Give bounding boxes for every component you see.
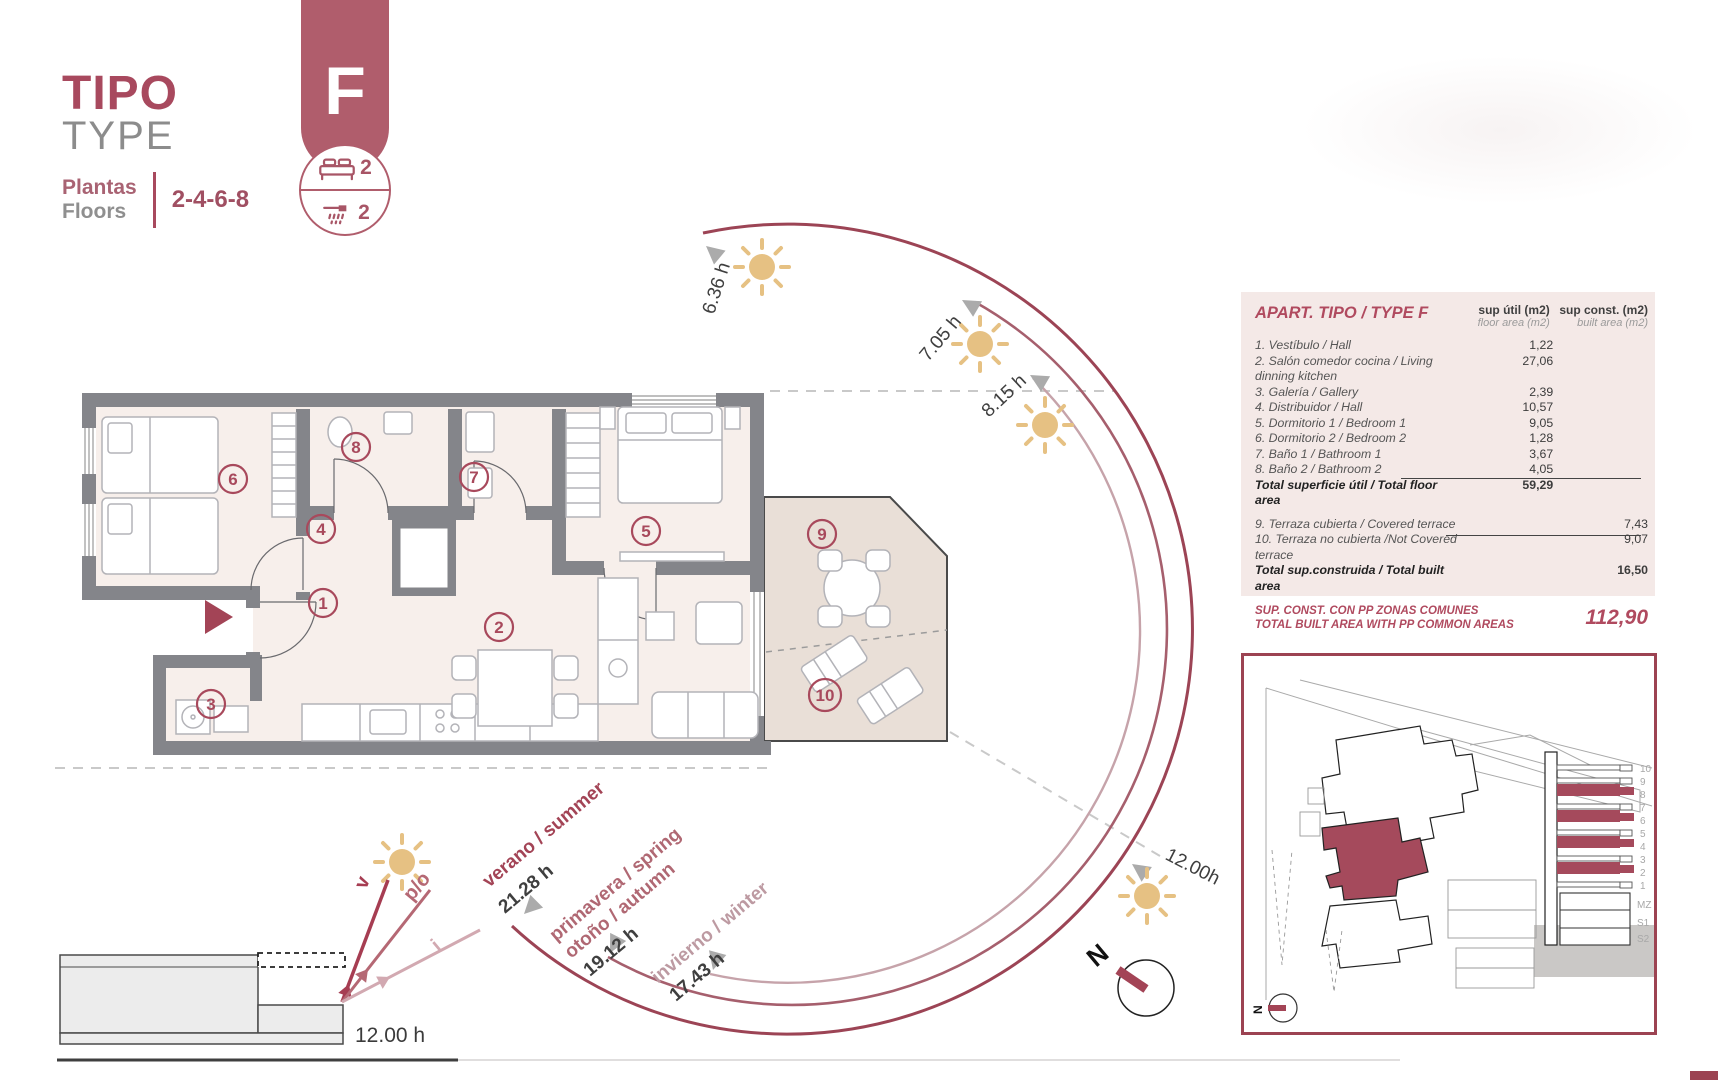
ray-label-v: v	[350, 873, 375, 892]
svg-text:S2: S2	[1637, 934, 1650, 945]
svg-text:1: 1	[318, 594, 327, 613]
hour-label: 12.00h	[1162, 845, 1223, 890]
hour-label: 8.15 h	[978, 370, 1031, 421]
subtotal-rule	[1446, 535, 1641, 536]
shower-icon	[320, 200, 354, 226]
svg-text:10: 10	[1640, 764, 1652, 775]
svg-text:7: 7	[469, 468, 478, 487]
grand-total-row: SUP. CONST. CON PP ZONAS COMUNESTOTAL BU…	[1255, 604, 1648, 632]
svg-text:MZ: MZ	[1637, 900, 1651, 911]
shaft-inner	[400, 528, 448, 588]
sun-icon	[735, 240, 789, 294]
table-row: 7. Baño 1 / Bathroom 13,67	[1255, 447, 1648, 463]
sheet-title-es: TIPO	[62, 66, 178, 121]
grand-total-value: 112,90	[1525, 606, 1648, 630]
svg-text:2: 2	[494, 618, 503, 637]
floors-label-es: Plantas	[62, 176, 137, 200]
svg-text:2: 2	[1640, 868, 1646, 879]
floor-labels: 10 9 8 7 6 5 4 3 2 1 MZ S1 S2	[1637, 764, 1652, 945]
sheet-title-en: TYPE	[62, 114, 174, 159]
svg-text:3: 3	[206, 695, 215, 714]
ray-po	[342, 890, 430, 1002]
table-row: 8. Baño 2 / Bathroom 24,05	[1255, 462, 1648, 478]
svg-text:10: 10	[816, 686, 835, 705]
floors-label-en: Floors	[62, 200, 137, 224]
building-elevation: 10 9 8 7 6 5 4 3 2 1 MZ S1 S2	[1545, 752, 1652, 945]
floors-divider	[153, 172, 156, 228]
col-built-area: sup const. (m2) built area (m2)	[1550, 304, 1648, 330]
table-row: 3. Galería / Gallery2,39	[1255, 385, 1648, 401]
table-row: 6. Dormitorio 2 / Bedroom 21,28	[1255, 431, 1648, 447]
total-floor-row: Total superficie útil / Total floor area…	[1255, 478, 1648, 509]
hour-label: 7.05 h	[916, 311, 966, 365]
svg-text:S1: S1	[1637, 918, 1650, 929]
site-compass: N	[1251, 994, 1297, 1022]
sun-icon	[1018, 398, 1072, 452]
hour-label: 6.36 h	[699, 260, 735, 317]
svg-text:5: 5	[1640, 829, 1646, 840]
svg-text:5: 5	[641, 522, 650, 541]
sun-icon	[1120, 869, 1174, 923]
terrace-floor	[764, 497, 947, 741]
area-table-header: APART. TIPO / TYPE F sup útil (m2) floor…	[1255, 304, 1648, 330]
subtotal-rule	[1401, 478, 1641, 479]
table-row: 9. Terraza cubierta / Covered terrace7,4…	[1255, 517, 1648, 533]
area-table-panel: APART. TIPO / TYPE F sup útil (m2) floor…	[1241, 292, 1655, 596]
floors-block: Plantas Floors 2-4-6-8	[62, 172, 249, 228]
table-row: 1. Vestíbulo / Hall1,22	[1255, 338, 1648, 354]
svg-text:7: 7	[1640, 803, 1646, 814]
season-labels: verano / summer 21.28 h primavera / spri…	[479, 778, 774, 1006]
corner-accent-bar	[1690, 1071, 1718, 1080]
bed-icon	[318, 155, 356, 181]
ray-i	[342, 930, 480, 1002]
site-plan-drawing: 10 9 8 7 6 5 4 3 2 1 MZ S1 S2 N	[1244, 656, 1654, 1032]
total-built-row: Total sup.construida / Total built area1…	[1255, 563, 1648, 594]
table-row: 4. Distribuidor / Hall10,57	[1255, 400, 1648, 416]
svg-text:6: 6	[228, 470, 237, 489]
type-badge-stats: 2 2	[299, 144, 391, 236]
table-row: 10. Terraza no cubierta /Not Covered ter…	[1255, 532, 1648, 563]
svg-text:1: 1	[1640, 881, 1646, 892]
bedrooms-count: 2	[360, 156, 372, 180]
compass: N	[1081, 938, 1174, 1016]
svg-text:9: 9	[1640, 777, 1646, 788]
svg-text:9: 9	[817, 525, 826, 544]
section-hour-label: 12.00 h	[355, 1024, 425, 1047]
site-compass-north-label: N	[1251, 1005, 1265, 1014]
area-table-title: APART. TIPO / TYPE F	[1255, 304, 1452, 330]
table-row: 2. Salón comedor cocina / Living dinning…	[1255, 354, 1648, 385]
col-floor-area: sup útil (m2) floor area (m2)	[1452, 304, 1550, 330]
svg-text:6: 6	[1640, 816, 1646, 827]
table-row: 5. Dormitorio 1 / Bedroom 19,05	[1255, 416, 1648, 432]
svg-text:4: 4	[1640, 842, 1646, 853]
section-diagram: v p/o i 12.00 h	[60, 868, 480, 1047]
bathrooms-count: 2	[358, 201, 370, 225]
entrance-arrow	[205, 600, 233, 634]
compass-north-label: N	[1081, 938, 1115, 973]
floors-value: 2-4-6-8	[172, 186, 249, 214]
svg-text:8: 8	[351, 438, 360, 457]
type-badge-letter: F	[301, 52, 389, 130]
svg-text:4: 4	[316, 520, 326, 539]
svg-text:8: 8	[1640, 790, 1646, 801]
svg-text:3: 3	[1640, 855, 1646, 866]
